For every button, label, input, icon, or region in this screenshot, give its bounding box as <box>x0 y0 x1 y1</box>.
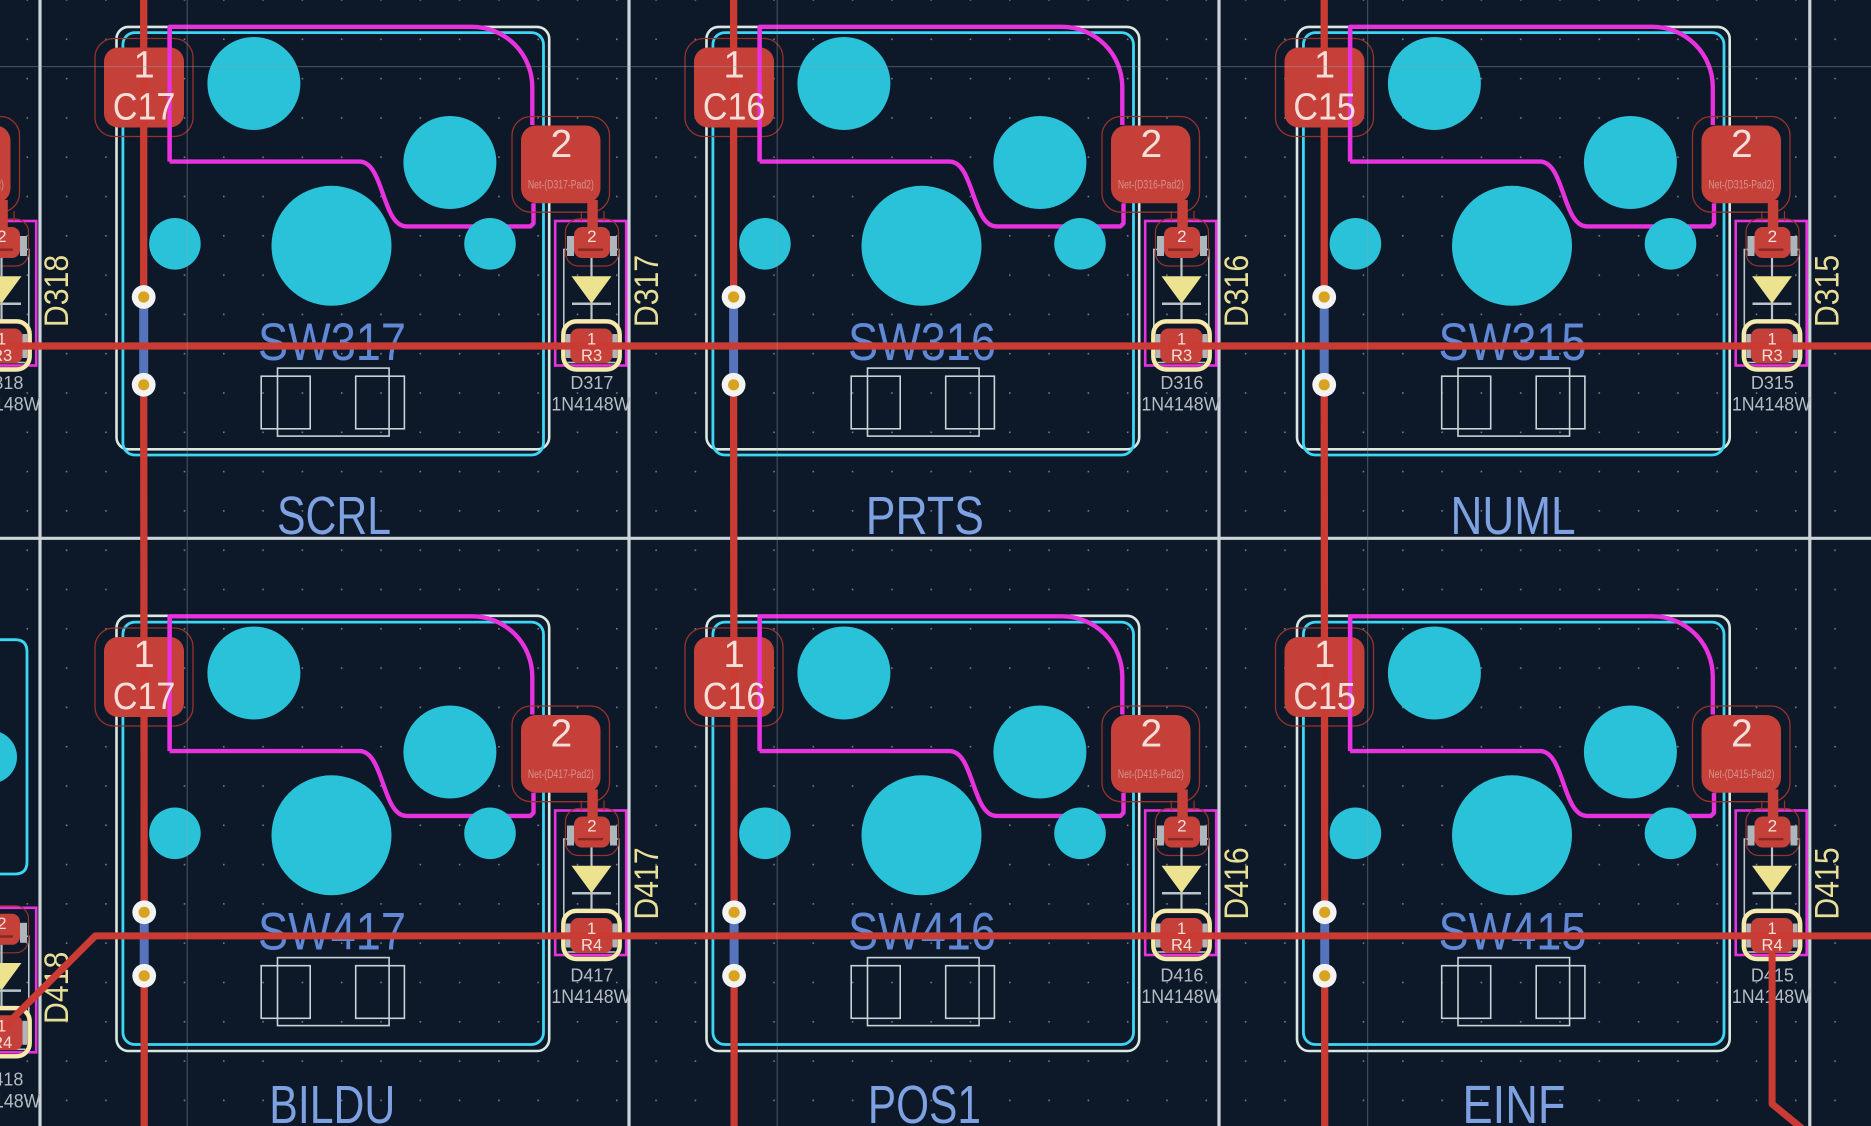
svg-text:2: 2 <box>551 713 573 756</box>
svg-text:Net-(D315-Pad2): Net-(D315-Pad2) <box>1708 180 1774 192</box>
svg-text:2: 2 <box>1141 123 1163 166</box>
svg-text:R3: R3 <box>0 347 12 365</box>
svg-text:SW415: SW415 <box>1439 902 1587 961</box>
svg-text:C16: C16 <box>703 87 766 129</box>
svg-text:1: 1 <box>587 920 596 938</box>
svg-text:1N4148W: 1N4148W <box>551 986 631 1008</box>
svg-text:D416: D416 <box>1160 965 1203 985</box>
svg-text:1: 1 <box>134 44 155 86</box>
svg-text:R3: R3 <box>1762 347 1783 365</box>
svg-text:D315: D315 <box>1751 373 1794 393</box>
svg-text:2: 2 <box>1141 713 1163 756</box>
svg-text:2: 2 <box>1768 817 1777 836</box>
svg-text:1: 1 <box>0 331 6 349</box>
svg-text:C15: C15 <box>1293 87 1356 129</box>
svg-text:2: 2 <box>0 914 7 933</box>
svg-text:Net-(D416-Pad2): Net-(D416-Pad2) <box>1118 769 1184 781</box>
svg-text:Net-(D415-Pad2): Net-(D415-Pad2) <box>1708 769 1774 781</box>
svg-text:SCRL: SCRL <box>277 486 391 546</box>
svg-text:1: 1 <box>1768 920 1777 938</box>
svg-text:2: 2 <box>0 227 7 246</box>
svg-text:Net-(D317-Pad2): Net-(D317-Pad2) <box>528 180 594 192</box>
svg-text:2: 2 <box>1177 227 1186 246</box>
svg-text:2: 2 <box>1177 817 1186 836</box>
svg-text:1: 1 <box>1314 44 1335 86</box>
svg-text:PRTS: PRTS <box>866 486 984 546</box>
svg-text:C16: C16 <box>703 676 766 718</box>
svg-text:R4: R4 <box>581 937 602 955</box>
svg-text:SW416: SW416 <box>848 902 996 961</box>
svg-text:1N4148W: 1N4148W <box>1141 394 1221 416</box>
svg-text:SW315: SW315 <box>1439 313 1587 372</box>
svg-text:D317: D317 <box>570 373 613 393</box>
svg-text:2: 2 <box>587 227 596 246</box>
svg-text:1N4148W: 1N4148W <box>551 394 631 416</box>
svg-text:1N4148W: 1N4148W <box>0 1090 41 1112</box>
svg-text:D318: D318 <box>38 255 76 327</box>
svg-text:1: 1 <box>724 634 745 676</box>
svg-text:2: 2 <box>551 123 573 166</box>
svg-text:D317: D317 <box>628 255 666 327</box>
svg-text:1: 1 <box>1177 920 1186 938</box>
svg-text:SW316: SW316 <box>848 313 996 372</box>
svg-text:SW317: SW317 <box>258 313 406 372</box>
svg-text:R3: R3 <box>1171 347 1192 365</box>
svg-text:1: 1 <box>587 331 596 349</box>
svg-text:D318: D318 <box>0 373 23 393</box>
svg-text:1: 1 <box>0 1017 6 1035</box>
svg-text:1: 1 <box>1314 634 1335 676</box>
svg-text:2: 2 <box>1731 123 1753 166</box>
svg-text:D315: D315 <box>1809 255 1847 327</box>
svg-text:D417: D417 <box>628 847 666 919</box>
svg-text:R4: R4 <box>1171 937 1192 955</box>
svg-text:D416: D416 <box>1218 847 1256 919</box>
svg-text:1N4148W: 1N4148W <box>1732 394 1812 416</box>
svg-text:D316: D316 <box>1160 373 1203 393</box>
svg-text:2: 2 <box>587 817 596 836</box>
svg-text:NUML: NUML <box>1451 486 1576 546</box>
svg-text:2: 2 <box>1768 227 1777 246</box>
svg-text:1: 1 <box>1768 331 1777 349</box>
svg-text:1: 1 <box>1177 331 1186 349</box>
svg-text:R3: R3 <box>581 347 602 365</box>
svg-text:D415: D415 <box>1809 847 1847 919</box>
svg-text:D418: D418 <box>0 1070 23 1090</box>
svg-text:1: 1 <box>724 44 745 86</box>
svg-text:BILDU: BILDU <box>269 1075 395 1126</box>
svg-text:2: 2 <box>1731 713 1753 756</box>
svg-text:Net-(D417-Pad2): Net-(D417-Pad2) <box>528 769 594 781</box>
svg-text:Net-(D318-Pad2): Net-(D318-Pad2) <box>0 180 4 192</box>
svg-text:C15: C15 <box>1293 676 1356 718</box>
svg-text:D417: D417 <box>570 965 613 985</box>
svg-text:D316: D316 <box>1218 255 1256 327</box>
svg-text:SW417: SW417 <box>258 902 406 961</box>
svg-text:C17: C17 <box>113 87 176 129</box>
svg-text:EINF: EINF <box>1463 1075 1566 1126</box>
svg-text:1: 1 <box>134 634 155 676</box>
svg-text:Net-(D316-Pad2): Net-(D316-Pad2) <box>1118 180 1184 192</box>
svg-text:R4: R4 <box>1762 937 1783 955</box>
svg-text:1N4148W: 1N4148W <box>0 394 41 416</box>
svg-text:R4: R4 <box>0 1034 12 1052</box>
svg-text:POS1: POS1 <box>868 1075 981 1126</box>
svg-text:C17: C17 <box>113 676 176 718</box>
svg-text:1N4148W: 1N4148W <box>1141 986 1221 1008</box>
